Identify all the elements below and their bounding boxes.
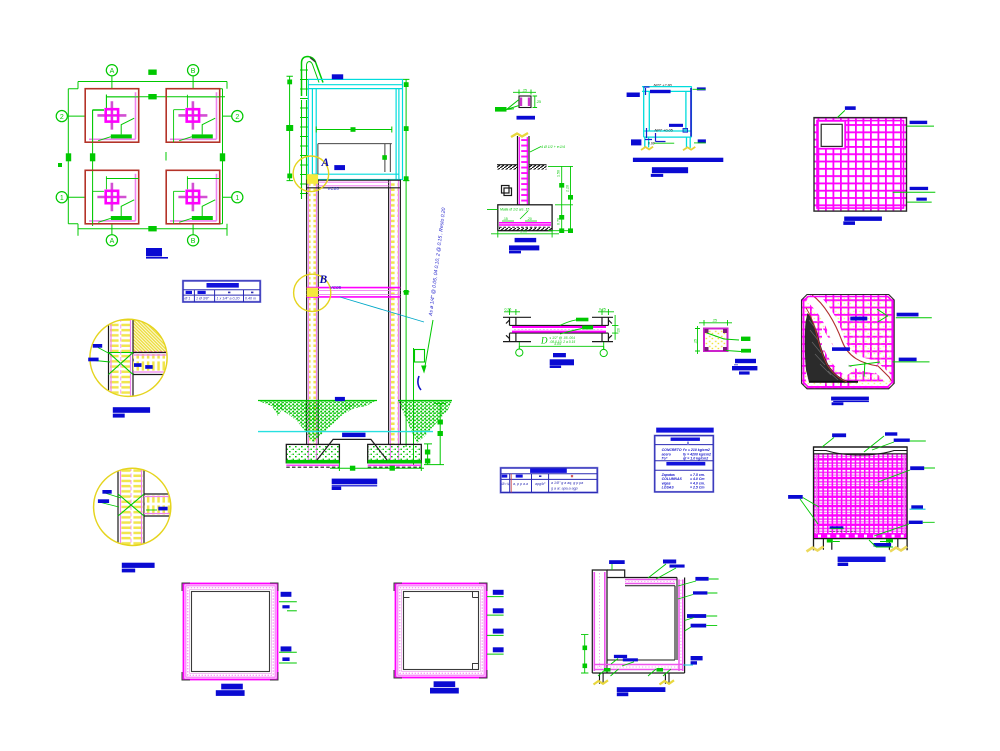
svg-text:D: D (540, 336, 548, 346)
svg-text:.25: .25 (536, 100, 541, 104)
svg-text:f'c⁄³: f'c⁄³ (662, 457, 669, 461)
svg-text:B: B (191, 68, 196, 75)
svg-text:4 Ø 1/2 + e:1/4: 4 Ø 1/2 + e:1/4 (541, 145, 565, 149)
svg-text:0.25: 0.25 (599, 308, 606, 312)
svg-text:a, p p a.a: a, p p a.a (513, 482, 528, 486)
svg-text:f'c = 210 kg/cm2: f'c = 210 kg/cm2 (683, 448, 710, 452)
svg-text:2: 2 (235, 114, 239, 121)
svg-text:B: B (319, 274, 328, 286)
svg-text:2: 2 (60, 114, 64, 121)
svg-text:1.00: 1.00 (520, 230, 527, 234)
svg-text:= 2.5 Cm: = 2.5 Cm (690, 486, 705, 490)
svg-text:2.20: 2.20 (565, 185, 569, 192)
svg-text:LOSAS: LOSAS (662, 486, 675, 490)
svg-text:1 Ø 3/8": 1 Ø 3/8" (196, 297, 210, 301)
svg-text:Ø 1: Ø 1 (184, 297, 191, 301)
svg-text:1: 1 (235, 195, 239, 202)
svg-text:1: 1 (60, 195, 64, 202)
svg-text:.25: .25 (522, 89, 527, 93)
svg-text:VC05: VC05 (330, 285, 342, 290)
svg-text:1 x 1/4" a 0.20: 1 x 1/4" a 0.20 (217, 297, 240, 301)
svg-text:apg/b³: apg/b³ (535, 482, 546, 486)
svg-text:.20: .20 (617, 328, 621, 333)
svg-text:NPT +0.05: NPT +0.05 (655, 129, 674, 133)
svg-text:.25: .25 (694, 339, 698, 344)
svg-text:0.40 m: 0.40 m (245, 297, 256, 301)
svg-text:a 1/8" g a aq, g p pa: a 1/8" g a aq, g p pa (551, 481, 583, 485)
svg-text:VC05: VC05 (328, 186, 340, 191)
svg-text:B: B (191, 238, 196, 245)
svg-text:A: A (110, 238, 115, 245)
svg-text:qt = 1.0 kg/cm2: qt = 1.0 kg/cm2 (683, 457, 708, 461)
svg-text:0.70: 0.70 (557, 218, 561, 225)
svg-text:3.04: 3.04 (554, 342, 561, 346)
svg-text:Ø=¼: Ø=¼ (501, 482, 510, 486)
svg-text:Malla Ø 1/2 a/s .15: Malla Ø 1/2 a/s .15 (500, 208, 529, 212)
svg-text:g a a⁄, apa.a agp: g a a⁄, apa.a agp (551, 487, 578, 491)
svg-text:A: A (110, 68, 115, 75)
svg-text:A: A (321, 157, 330, 169)
svg-text:.15: .15 (503, 217, 508, 221)
svg-text:0.25: 0.25 (505, 308, 512, 312)
svg-text:.20: .20 (527, 217, 532, 221)
svg-text:.25: .25 (712, 319, 717, 323)
svg-text:1.50: 1.50 (557, 170, 561, 177)
svg-text:CONCRETO: CONCRETO (662, 448, 682, 452)
